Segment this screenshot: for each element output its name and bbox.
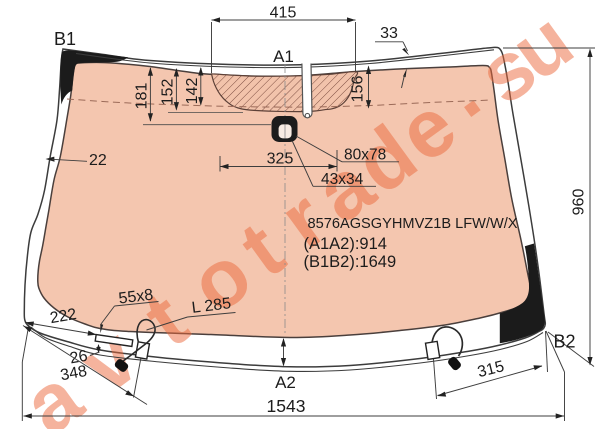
svg-text:B1: B1	[54, 29, 76, 49]
svg-text:8576AGSGYHMVZ1B LFW/W/X: 8576AGSGYHMVZ1B LFW/W/X	[308, 216, 518, 232]
svg-text:A1: A1	[273, 47, 294, 66]
svg-text:181: 181	[134, 83, 151, 110]
svg-text:152: 152	[160, 79, 177, 106]
svg-text:1543: 1543	[267, 396, 306, 416]
svg-text:43x34: 43x34	[321, 171, 364, 188]
svg-text:22: 22	[89, 152, 107, 169]
svg-text:415: 415	[270, 5, 297, 22]
svg-text:156: 156	[350, 76, 367, 103]
svg-text:80x78: 80x78	[344, 147, 386, 164]
svg-text:33: 33	[380, 25, 398, 42]
svg-text:142: 142	[184, 78, 201, 105]
svg-text:(A1A2):914: (A1A2):914	[304, 235, 387, 253]
svg-text:B2: B2	[553, 332, 575, 352]
svg-text:960: 960	[571, 189, 588, 216]
svg-text:325: 325	[267, 151, 294, 168]
svg-text:A2: A2	[275, 373, 296, 392]
svg-text:(B1B2):1649: (B1B2):1649	[304, 253, 397, 271]
